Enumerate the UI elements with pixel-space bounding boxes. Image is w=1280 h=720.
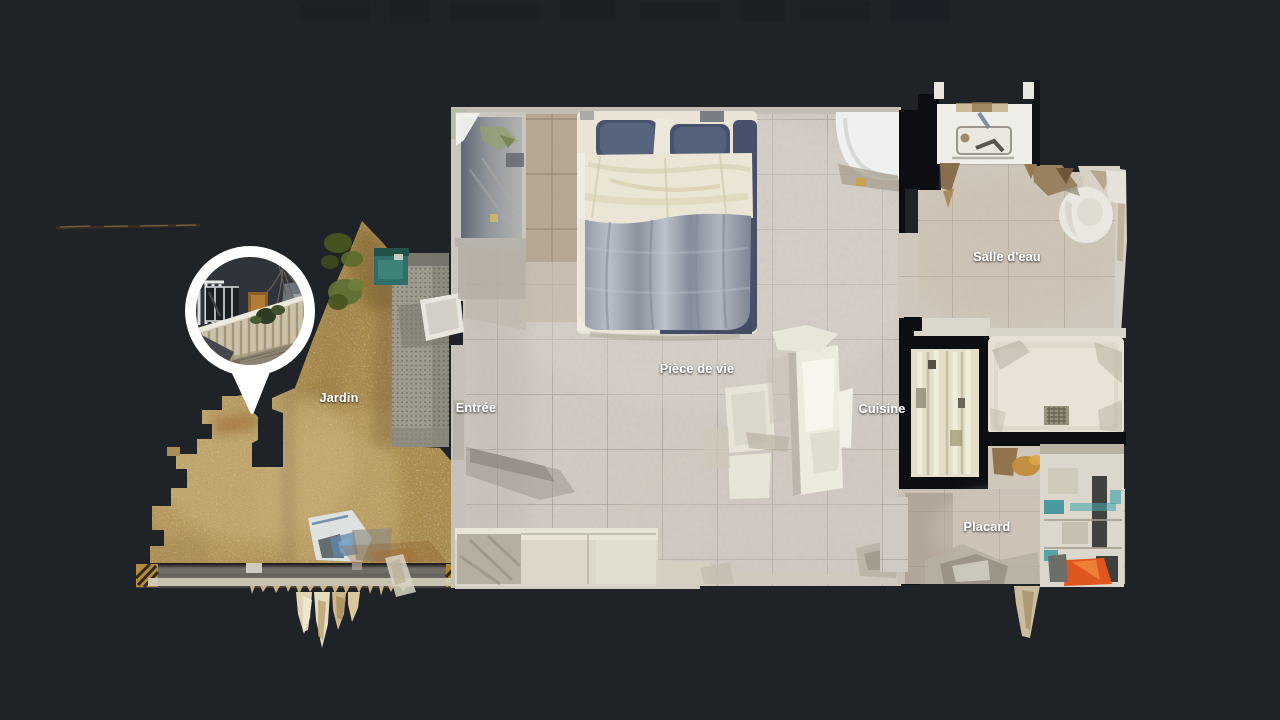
svg-text:Salle d'eau: Salle d'eau [973,250,1041,264]
svg-text:Jardin: Jardin [320,391,359,405]
svg-text:Entrée: Entrée [456,401,496,415]
svg-text:Cuisine: Cuisine [859,402,906,416]
svg-text:Placard: Placard [964,520,1011,534]
svg-text:Pièce de vie: Pièce de vie [660,362,735,376]
